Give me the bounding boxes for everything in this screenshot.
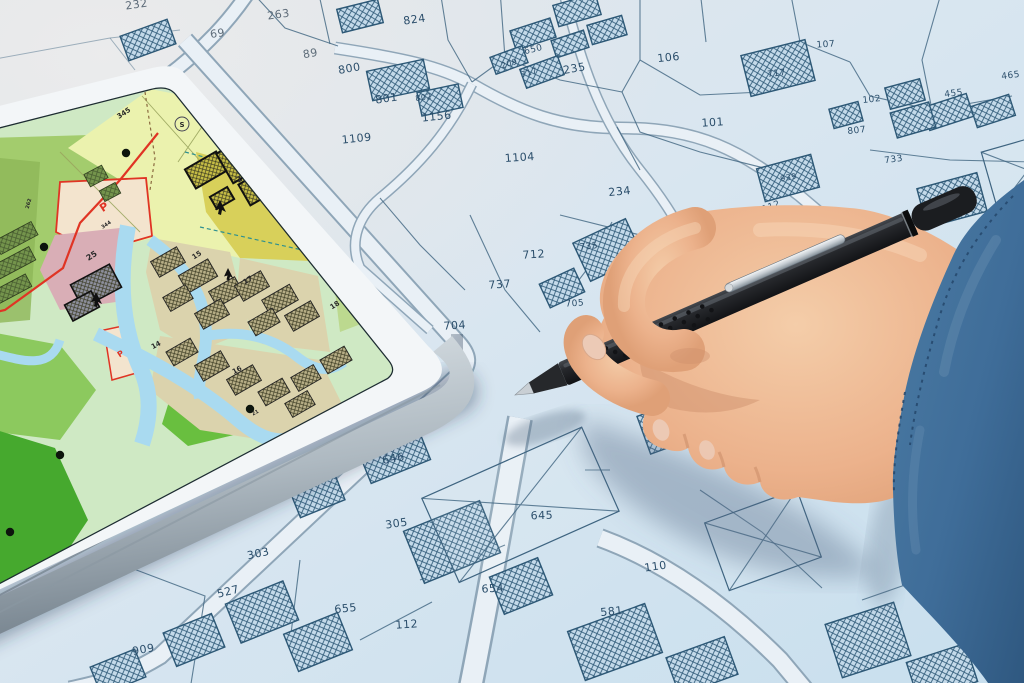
tree-icon <box>40 243 48 251</box>
parcel-label: 102 <box>862 94 882 106</box>
scene-canvas: 2322638246989800801802115611091104107650… <box>0 0 1024 683</box>
parcel-label: 581 <box>600 604 624 619</box>
parcel-label: 101 <box>701 115 724 130</box>
parcel-label: 107 <box>816 39 835 50</box>
parcel-label: 112 <box>395 617 418 632</box>
parcel-label: S <box>179 121 184 129</box>
parcel-label: 106 <box>657 50 681 65</box>
parcel-label: 69 <box>209 26 226 41</box>
tree-icon <box>56 451 64 459</box>
parcel-label: 654 <box>481 581 504 596</box>
photo-scene: 2322638246989800801802115611091104107650… <box>0 0 1024 683</box>
tree-icon <box>122 149 130 157</box>
parcel-label: 807 <box>847 125 867 137</box>
parcel-label: 735 <box>579 241 599 253</box>
parcel-label: 645 <box>530 509 553 523</box>
parcel-label: 705 <box>565 298 584 309</box>
parcel-label: 234 <box>608 184 632 199</box>
index-tip-shadow <box>670 348 710 364</box>
parcel-label: 655 <box>334 601 358 616</box>
parcel-label: 89 <box>302 46 319 61</box>
parcel-label: 712 <box>522 247 545 262</box>
parcel-label: 1104 <box>504 150 535 165</box>
tree-icon <box>6 528 14 536</box>
parcel-label: 737 <box>488 277 511 292</box>
